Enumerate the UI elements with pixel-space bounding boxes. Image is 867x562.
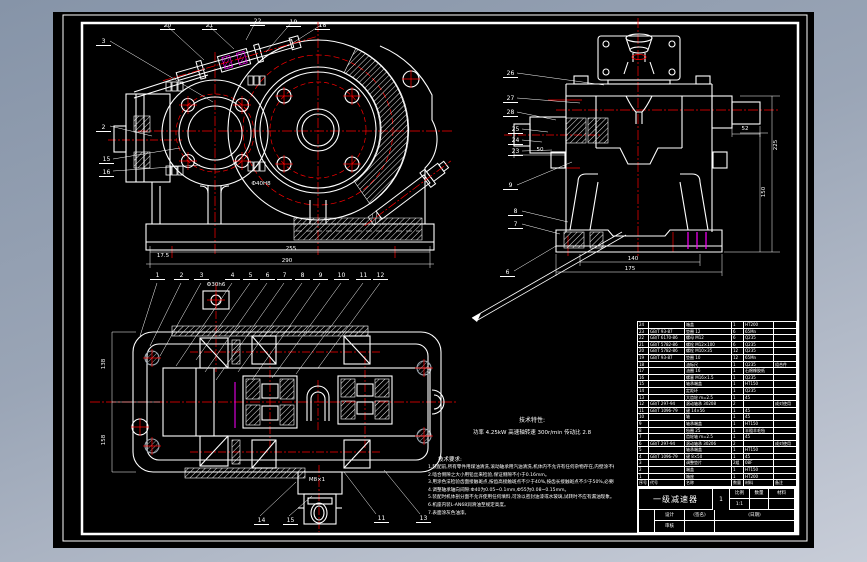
bom-cell [649,447,685,453]
sheet-number: 1 [713,489,730,510]
bom-cell [774,348,796,354]
bom-cell [774,375,796,381]
part-callout: 21 [202,22,217,30]
side-view [472,18,780,322]
part-callout: 20 [160,22,175,30]
bom-cell: 8 [638,428,649,434]
bom-cell: 备注 [774,480,796,486]
dimension-text: Ф40H8 [251,181,270,187]
bom-cell: 成对使用 [774,401,796,407]
bom-cell: 轴承端盖 [685,421,732,427]
bom-cell: 1 [732,434,744,440]
bom-cell: 序号 [638,480,649,486]
bom-cell: 箱盖 [685,322,732,328]
bom-cell [649,368,685,374]
bom-row: 14定距环1Q235 [638,388,796,395]
bom-cell: 螺塞 M16×1.5 [685,375,732,381]
bom-cell: 滚动轴承 30208 [685,401,732,407]
bom-cell: 1 [732,408,744,414]
bom-row: 12GB/T 297-94滚动轴承 302082成对使用 [638,401,796,408]
bom-cell: 轴 [685,414,732,420]
dimension-text: Ф30h6 [207,282,226,288]
bom-cell: 石棉橡胶纸 [744,368,774,374]
dimension-text: 225 [773,140,779,151]
part-callout: 7 [277,272,292,280]
bom-cell: 1 [638,474,649,480]
bom-cell [774,460,796,466]
bom-cell: 45 [744,454,774,460]
bom-row: 13大齿轮 m=2.5145 [638,395,796,402]
bom-cell: 定距环 [685,388,732,394]
bom-cell [774,355,796,361]
bom-row: 18油标尺1Q235组合件 [638,362,796,369]
bom-cell: 1 [732,375,744,381]
part-callout: 4 [225,272,240,280]
bom-cell: 10 [638,414,649,420]
bom-cell: 19 [638,355,649,361]
dimension-text: M8×1 [309,477,325,483]
bom-cell: 键 8×50 [685,454,732,460]
bom-cell: 轴承端盖 [685,381,732,387]
part-callout: 1 [150,272,165,280]
tech-spec-line: 功率 4.25kW 高速轴转速 300r/min 传动比 2.8 [448,429,616,437]
bom-cell [649,414,685,420]
bom-cell: 4 [638,454,649,460]
tech-req-lines: 1.装配前,所有零件用煤油清洗,滚动轴承用汽油清洗,机体内不允许有任何杂物存在,… [428,464,614,517]
bom-cell: Q235 [744,375,774,381]
part-callout: 26 [503,70,518,78]
bom-row: 4GB/T 1096-79键 8×50145 [638,454,796,461]
bom-cell: 材料 [744,480,774,486]
part-callout: 11 [356,272,371,280]
bom-cell: 螺栓 M12×100 [685,342,732,348]
bom-row: 24箱盖1HT200 [638,322,796,329]
material-label: 材料 [769,489,795,499]
bom-cell: GB/T 1096-79 [649,454,685,460]
bom-cell: 端盖 [685,467,732,473]
tech-req-line: 5.装配时机体剖分面不允许使用任何填料,可涂以密封油漆或水玻璃,试转时不应有漏油… [428,494,614,502]
part-callout: 3 [96,38,111,46]
bom-cell [649,388,685,394]
cad-viewport: 2021221918321516262728252423987612345678… [0,0,867,562]
bom-cell [774,335,796,341]
bom-cell: 1 [732,454,744,460]
bom-cell [774,428,796,434]
bom-cell: HT150 [744,381,774,387]
count-label: 数量 [750,489,769,499]
bom-cell: 14 [638,388,649,394]
bom-cell: 成对使用 [774,441,796,447]
bom-cell: HT150 [744,447,774,453]
bom-cell: 21 [638,342,649,348]
bom-row: 19GB/T 93-87垫圈 101265Mn [638,355,796,362]
part-callout: 2 [174,272,189,280]
count-value [750,499,769,510]
bom-row: 5轴承端盖1HT150 [638,447,796,454]
part-callout: 11 [374,515,389,523]
bom-cell: HT150 [744,467,774,473]
part-callout: 27 [503,95,518,103]
bom-cell: 1 [732,362,744,368]
bom-cell [649,428,685,434]
bom-cell: 22 [638,335,649,341]
bom-cell: HT200 [744,322,774,328]
bom-row: 3调整垫片2组08F [638,460,796,467]
part-callout: 14 [254,517,269,525]
bom-cell [649,474,685,480]
tech-req-line: 7.表面涂灰色油漆。 [428,510,614,518]
design-label: 设计 [655,510,685,521]
bom-cell: 1 [732,414,744,420]
bom-cell: 20 [638,348,649,354]
dimension-text: 255 [286,246,297,252]
bom-row: 2端盖1HT150 [638,467,796,474]
bom-cell: 15 [638,381,649,387]
bom-cell: GB/T 297-94 [649,441,685,447]
bom-cell: 1 [732,428,744,434]
bom-cell: 17 [638,368,649,374]
bom-row: 9轴承端盖1HT150 [638,421,796,428]
bom-cell: GB/T 1096-79 [649,408,685,414]
bom-cell: 23 [638,329,649,335]
bom-row: 23GB/T 93-87垫圈 12665Mn [638,329,796,336]
bom-cell [744,401,774,407]
dimension-text: 138 [101,359,107,370]
front-view [108,21,456,268]
tech-req-heading: 技术要求: [428,456,614,464]
bom-cell: HT200 [744,474,774,480]
material-value [769,499,795,510]
dimension-text: 140 [628,256,639,262]
bom-cell: 轴承端盖 [685,447,732,453]
part-callout: 2 [96,124,111,132]
bom-row: 17油圈 161石棉橡胶纸 [638,368,796,375]
bom-cell: 12 [732,348,744,354]
dimension-text: 17.5 [157,253,169,259]
date-hint: (日期) [715,510,795,521]
bom-cell: 24 [638,322,649,328]
dimension-text: 175 [625,266,636,272]
bom-cell [649,421,685,427]
bom-cell: 13 [638,395,649,401]
bom-cell: 1 [732,421,744,427]
tech-req-line: 4.调整轴承轴向间隙:Ф40为0.05~0.1mm,Ф55为0.08~0.15m… [428,487,614,495]
part-callout: 16 [99,169,114,177]
bom-cell: 45 [744,408,774,414]
part-callout: 28 [503,109,518,117]
bom-cell: GB/T 5782-86 [649,348,685,354]
part-callout: 12 [373,272,388,280]
scale-value: 1:1 [730,499,750,510]
bom-cell: 6 [732,342,744,348]
part-callout: 24 [508,137,523,145]
title-block: 一级减速器 比例 数量 材料 1 1:1 设计 (签名) (日期) 审核 [637,487,797,534]
bom-cell: 键 14×56 [685,408,732,414]
bom-cell: 垫圈 10 [685,355,732,361]
part-callout: 5 [243,272,258,280]
bom-cell [649,434,685,440]
bom-table: 24箱盖1HT20023GB/T 93-87垫圈 12665Mn22GB/T 6… [637,321,797,487]
bom-cell: Q235 [744,362,774,368]
bom-cell: 名称 [685,480,732,486]
bom-cell: 12 [638,401,649,407]
bom-cell [774,467,796,473]
bom-cell: 12 [732,355,744,361]
bom-cell: 螺母 M12 [685,335,732,341]
tech-requirements-note: 技术要求: 1.装配前,所有零件用煤油清洗,滚动轴承用汽油清洗,机体内不允许有任… [428,456,614,517]
bom-cell: 7 [638,434,649,440]
bom-cell: GB/T 6170-86 [649,335,685,341]
bom-cell [774,329,796,335]
bom-cell [774,395,796,401]
part-callout: 8 [508,208,523,216]
bom-cell: 大齿轮 m=2.5 [685,395,732,401]
bom-cell: 油标尺 [685,362,732,368]
bom-cell: 65Mn [744,355,774,361]
bom-cell: 油圈 16 [685,368,732,374]
part-callout: 9 [503,182,518,190]
part-callout: 15 [99,156,114,164]
bom-cell [774,421,796,427]
bom-cell [774,414,796,420]
bom-row: 10轴145 [638,414,796,421]
bom-cell: 1 [732,474,744,480]
check-sign-blank [685,521,715,532]
bom-cell: 08F [744,460,774,466]
bom-cell [649,381,685,387]
bom-cell: 2 [638,467,649,473]
dimension-text: 290 [282,258,293,264]
bom-row: 20GB/T 5782-86螺栓 M10×3512Q235 [638,348,796,355]
bom-cell [774,368,796,374]
bom-cell: 1 [732,467,744,473]
bom-cell: 6 [732,329,744,335]
bom-cell: 螺栓 M10×35 [685,348,732,354]
bom-cell: 16 [638,375,649,381]
bom-cell [774,447,796,453]
tech-spec-heading: 技术特性: [448,417,616,425]
bom-cell: 6 [638,441,649,447]
part-callout: 23 [508,148,523,156]
part-callout: 10 [334,272,349,280]
tech-spec-note: 技术特性: 功率 4.25kW 高速轴转速 300r/min 传动比 2.8 [448,417,616,437]
bom-cell: Q235 [744,342,774,348]
bom-cell: 1 [732,395,744,401]
bom-cell: 1 [732,322,744,328]
top-view [90,283,458,532]
check-date-blank [715,521,795,532]
bom-cell: 1 [732,381,744,387]
tech-req-line: 3.用涂色法检验齿面接触斑点,按齿高接触斑点不少于40%,按齿长接触斑点不少于5… [428,479,614,487]
bom-cell [649,375,685,381]
bom-cell: HT150 [744,421,774,427]
part-callout: 25 [508,126,523,134]
bom-row: 11GB/T 1096-79键 14×56145 [638,408,796,415]
bom-cell [649,322,685,328]
bom-cell [744,441,774,447]
dimension-text: 50 [537,147,544,153]
sign-hint: (签名) [685,510,715,521]
bom-cell: GB/T 5782-86 [649,342,685,348]
bom-row: 15轴承端盖1HT150 [638,381,796,388]
check-label: 审核 [655,521,685,532]
bom-cell: 1 [732,447,744,453]
part-callout: 3 [194,272,209,280]
bom-cell: 毡圈 25 [685,428,732,434]
bom-cell: 数量 [732,480,744,486]
bom-cell: 65Mn [744,329,774,335]
bom-cell: GB/T 297-94 [649,401,685,407]
scale-label: 比例 [730,489,750,499]
tech-req-line: 2.啮合侧隙之大小用铅丝来检验,保证侧隙不小于0.16mm。 [428,472,614,480]
part-callout: 19 [286,19,301,27]
bom-cell: 3 [638,460,649,466]
bom-row: 1箱座1HT200 [638,474,796,481]
bom-row: 6GB/T 297-94滚动轴承 302062成对使用 [638,441,796,448]
part-callout: 9 [313,272,328,280]
bom-cell: GB/T 93-87 [649,355,685,361]
bom-cell: 半粗羊毛毡 [744,428,774,434]
bom-header-row: 序号代号名称数量材料备注 [638,480,796,486]
bom-cell: 调整垫片 [685,460,732,466]
dimension-text: 52 [742,126,749,132]
bom-row: 16螺塞 M16×1.51Q235 [638,375,796,382]
bom-cell [774,434,796,440]
bom-row: 8毡圈 251半粗羊毛毡 [638,428,796,435]
part-callout: 6 [260,272,275,280]
bom-cell [774,388,796,394]
bom-cell: 1 [732,388,744,394]
bom-cell: 2 [732,441,744,447]
bom-cell: 垫圈 12 [685,329,732,335]
bom-cell: 18 [638,362,649,368]
part-callout: 6 [500,269,515,277]
title-block-blank [639,510,655,532]
bom-cell: 6 [732,335,744,341]
bom-cell: 1 [732,368,744,374]
bom-cell: 代号 [649,480,685,486]
bom-cell [774,408,796,414]
dimension-text: 150 [761,187,767,198]
part-callout: 7 [508,221,523,229]
part-callout: 22 [250,18,265,26]
tech-req-line: 6.机座内装L-AN68润滑油至规定高度。 [428,502,614,510]
bom-cell: Q235 [744,348,774,354]
bom-cell: 2 [732,401,744,407]
bom-cell [774,381,796,387]
bom-cell: 箱座 [685,474,732,480]
bom-row: 21GB/T 5782-86螺栓 M12×1006Q235 [638,342,796,349]
bom-cell: Q235 [744,335,774,341]
bom-cell: GB/T 93-87 [649,329,685,335]
bom-cell [649,362,685,368]
bom-cell: 齿轮轴 m=2.5 [685,434,732,440]
bom-cell: 滚动轴承 30206 [685,441,732,447]
bom-cell [774,454,796,460]
bom-cell: 45 [744,395,774,401]
bom-cell [649,395,685,401]
bom-cell: 45 [744,434,774,440]
bom-row: 22GB/T 6170-86螺母 M126Q235 [638,335,796,342]
bom-cell: 9 [638,421,649,427]
bom-cell: 5 [638,447,649,453]
bom-cell [774,322,796,328]
part-callout: 8 [295,272,310,280]
tech-req-line: 1.装配前,所有零件用煤油清洗,滚动轴承用汽油清洗,机体内不允许有任何杂物存在,… [428,464,614,472]
bom-cell [774,342,796,348]
bom-cell: Q235 [744,388,774,394]
bom-cell: 11 [638,408,649,414]
bom-cell: 45 [744,414,774,420]
drawing-title: 一级减速器 [639,489,713,510]
bom-cell [649,467,685,473]
bom-cell: 2组 [732,460,744,466]
bom-cell [774,474,796,480]
part-callout: 18 [315,22,330,30]
bom-cell [649,460,685,466]
dimension-text: 158 [101,435,107,446]
bom-row: 7齿轮轴 m=2.5145 [638,434,796,441]
bom-cell: 组合件 [774,362,796,368]
part-callout: 15 [283,517,298,525]
